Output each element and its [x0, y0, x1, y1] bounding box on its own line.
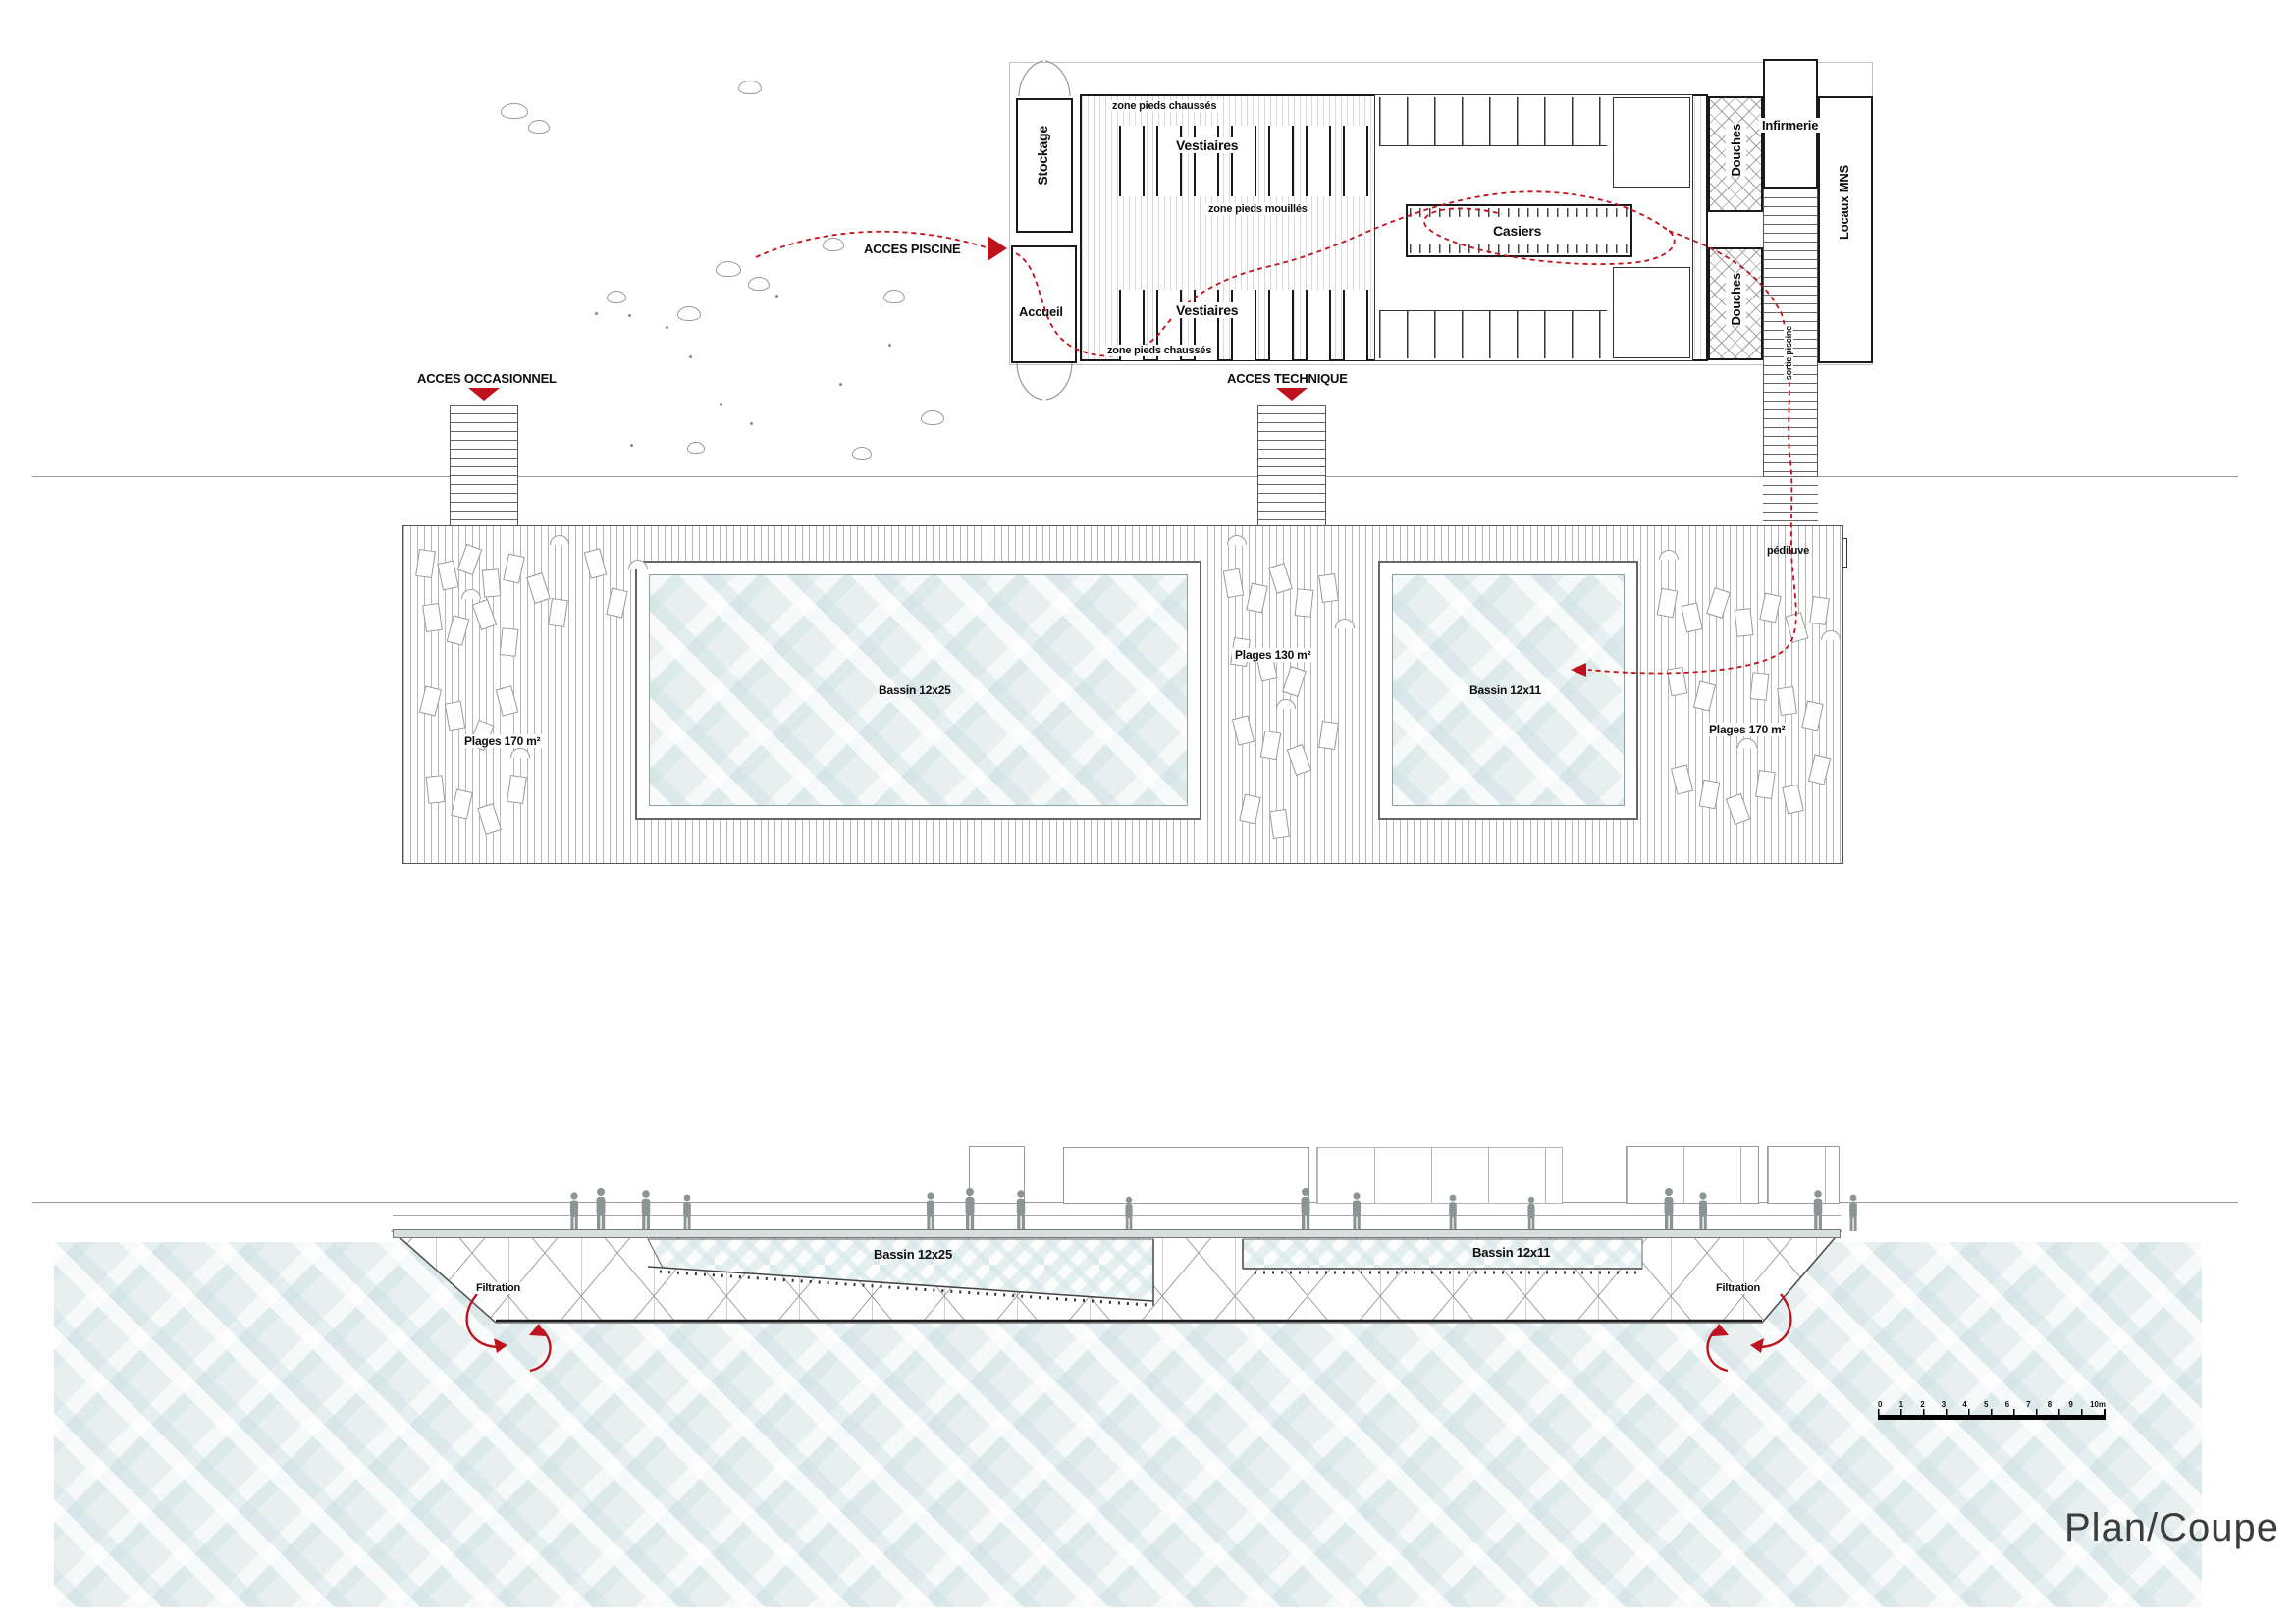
- room-stockage-label: Stockage: [1035, 126, 1050, 186]
- quay-edge-line: [32, 476, 2238, 477]
- acces-technique-arrow: [1276, 388, 1308, 401]
- bush: [883, 290, 905, 303]
- wc-stalls-bottom: [1379, 310, 1607, 358]
- scale-bar-rule: [1878, 1415, 2106, 1420]
- bush: [528, 120, 550, 134]
- pool-small-label: Bassin 12x11: [1469, 683, 1541, 697]
- gravel-dot: [595, 312, 598, 315]
- core-room-top-right: [1613, 97, 1690, 188]
- vestiaires-bottom-label: Vestiaires: [1173, 302, 1241, 318]
- bush: [716, 261, 741, 277]
- bush: [677, 306, 701, 321]
- gravel-dot: [689, 355, 692, 358]
- zone-pieds-chausses-top-label: zone pieds chaussés: [1109, 100, 1219, 112]
- bush: [738, 81, 762, 94]
- acces-occasionnel-arrow: [468, 388, 500, 401]
- scale-tick-label: 10m: [2090, 1400, 2106, 1409]
- section-cabin-2: [1063, 1147, 1309, 1204]
- acces-occasionnel-label: ACCES OCCASIONNEL: [417, 371, 557, 386]
- bush: [823, 238, 844, 251]
- plages-left-label: Plages 170 m²: [461, 734, 543, 748]
- gravel-dot: [628, 314, 631, 317]
- bush: [501, 103, 528, 119]
- gravel-dot: [775, 295, 778, 298]
- section-cabin-1: [969, 1146, 1025, 1204]
- scale-tick-label: 9: [2068, 1400, 2072, 1409]
- lounger: [500, 627, 519, 657]
- zone-pieds-chausses-bottom-label: zone pieds chaussés: [1104, 345, 1214, 356]
- scale-tick-label: 0: [1878, 1400, 1882, 1409]
- plages-right-label: Plages 170 m²: [1706, 723, 1788, 736]
- lounger: [1735, 608, 1754, 637]
- filtration-left-label: Filtration: [473, 1282, 523, 1294]
- room-douches-top-label: Douches: [1726, 124, 1746, 177]
- section-cabin-5: [1767, 1146, 1840, 1204]
- casiers-lockers-top: [1410, 208, 1629, 217]
- scale-tick-label: 1: [1899, 1400, 1903, 1409]
- vestiaires-top-label: Vestiaires: [1173, 137, 1241, 153]
- lounger: [1295, 588, 1314, 618]
- wc-stalls-top: [1379, 97, 1607, 146]
- gravel-dot: [839, 383, 842, 386]
- casiers-label: Casiers: [1490, 223, 1544, 239]
- scale-bar: 0 1 2 3 4 5 6 7 8 9 10m: [1878, 1400, 2106, 1428]
- section-pool-large-label: Bassin 12x25: [874, 1247, 952, 1262]
- casiers-lockers-bottom: [1410, 244, 1629, 253]
- acces-piscine-arrow: [988, 236, 1007, 261]
- sortie-piscine-label: sortie piscine: [1784, 324, 1793, 382]
- section-cabin-4: [1626, 1146, 1759, 1204]
- section-railing: [393, 1215, 1841, 1216]
- gravel-dot: [750, 422, 753, 425]
- scale-tick-label: 6: [2005, 1400, 2009, 1409]
- pool-large-label: Bassin 12x25: [879, 683, 951, 697]
- acces-technique-label: ACCES TECHNIQUE: [1227, 371, 1348, 386]
- section-cabin-3: [1316, 1147, 1563, 1204]
- section-deck-slab: [393, 1229, 1841, 1238]
- acces-piscine-label: ACCES PISCINE: [864, 242, 961, 256]
- scale-tick-label: 3: [1942, 1400, 1946, 1409]
- gravel-dot: [630, 444, 633, 447]
- room-locaux-mns-label: Locaux MNS: [1837, 165, 1851, 240]
- scale-tick-label: 2: [1920, 1400, 1924, 1409]
- lounger: [1750, 672, 1770, 701]
- gravel-dot: [888, 344, 891, 347]
- scale-tick-label: 5: [1984, 1400, 1988, 1409]
- scale-tick-label: 8: [2048, 1400, 2052, 1409]
- drawing-sheet: Stockage Accueil Vestiaires Vestiaires z…: [0, 0, 2296, 1624]
- gangway-occasionnel: [450, 405, 518, 543]
- pediluve-label: pédiluve: [1767, 545, 1809, 557]
- bush: [921, 410, 944, 425]
- gravel-dot: [720, 403, 722, 406]
- bush: [748, 277, 770, 291]
- bush: [607, 291, 626, 303]
- gravel-dot: [666, 326, 668, 329]
- room-infirmerie-label: Infirmerie: [1759, 118, 1821, 133]
- lounger: [482, 568, 501, 597]
- scale-tick-label: 7: [2026, 1400, 2030, 1409]
- plages-center-label: Plages 130 m²: [1232, 648, 1313, 662]
- scale-tick-label: 4: [1962, 1400, 1966, 1409]
- filtration-right-label: Filtration: [1713, 1282, 1763, 1294]
- room-accueil-label: Accueil: [1019, 304, 1063, 319]
- core-room-bottom-right: [1613, 267, 1690, 358]
- gangway-technique: [1257, 405, 1326, 543]
- bush: [687, 442, 705, 454]
- lounger: [426, 775, 446, 804]
- room-douches-bottom-label: Douches: [1726, 273, 1746, 326]
- section-pool-small-label: Bassin 12x11: [1472, 1245, 1550, 1260]
- bush: [852, 447, 872, 460]
- sheet-title: Plan/Coupe: [2064, 1506, 2279, 1550]
- zone-pieds-mouilles-label: zone pieds mouillés: [1205, 203, 1310, 215]
